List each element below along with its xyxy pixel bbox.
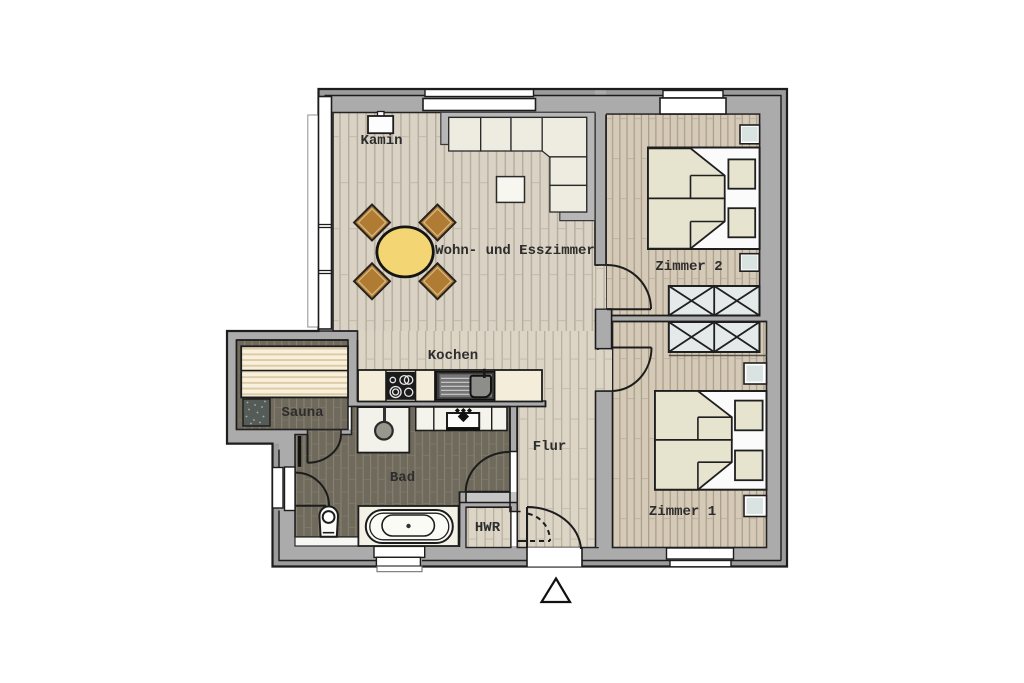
svg-text:Wohn- und Esszimmer: Wohn- und Esszimmer [435, 243, 595, 259]
svg-text:Flur: Flur [533, 439, 567, 455]
svg-text:Zimmer 1: Zimmer 1 [649, 504, 716, 520]
svg-text:Zimmer 2: Zimmer 2 [655, 259, 722, 275]
svg-text:Kochen: Kochen [428, 348, 478, 364]
svg-text:Kamin: Kamin [360, 133, 402, 149]
svg-text:Bad: Bad [390, 470, 415, 486]
svg-text:Sauna: Sauna [281, 405, 324, 421]
svg-text:HWR: HWR [475, 520, 501, 536]
